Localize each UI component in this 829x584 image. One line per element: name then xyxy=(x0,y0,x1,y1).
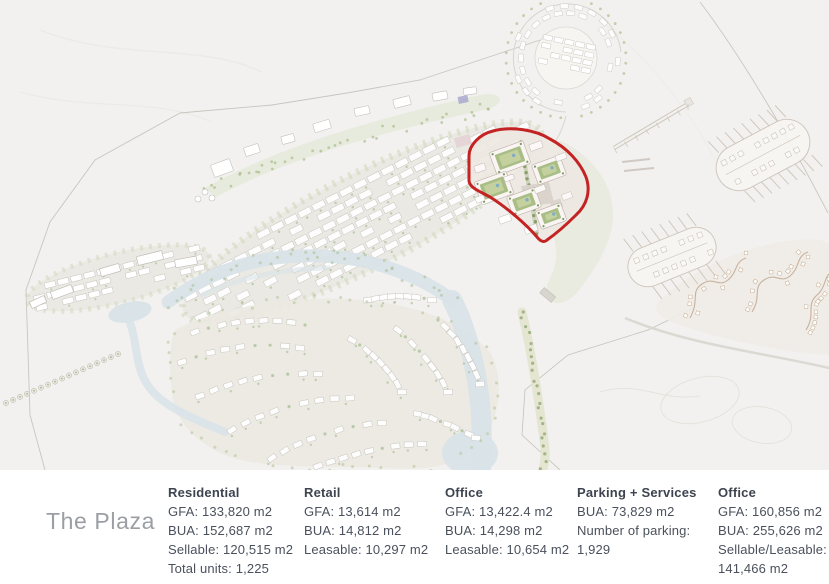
stat-column-retail-1: RetailGFA: 13,614 m2BUA: 14,812 m2Leasab… xyxy=(304,483,436,559)
stat-line: BUA: 255,626 m2 xyxy=(718,521,829,540)
stat-line: Number of parking: 1,929 xyxy=(577,521,713,559)
stat-column-header: Residential xyxy=(168,483,300,502)
stat-column-header: Parking + Services xyxy=(577,483,713,502)
stat-column-header: Retail xyxy=(304,483,436,502)
stats-panel: The Plaza ResidentialGFA: 133,820 m2BUA:… xyxy=(0,470,829,584)
stat-column-office-2: OfficeGFA: 13,422.4 m2BUA: 14,298 m2Leas… xyxy=(445,483,577,559)
stat-line: Sellable: 120,515 m2 xyxy=(168,540,300,559)
stat-column-header: Office xyxy=(445,483,577,502)
stat-line: GFA: 133,820 m2 xyxy=(168,502,300,521)
masterplan-map-svg xyxy=(0,0,829,470)
stat-line: BUA: 73,829 m2 xyxy=(577,502,713,521)
stat-line: GFA: 160,856 m2 xyxy=(718,502,829,521)
masterplan-screenshot: The Plaza ResidentialGFA: 133,820 m2BUA:… xyxy=(0,0,829,584)
stat-line: BUA: 14,812 m2 xyxy=(304,521,436,540)
stat-line: BUA: 152,687 m2 xyxy=(168,521,300,540)
stat-column-header: Office xyxy=(718,483,829,502)
stat-line: BUA: 14,298 m2 xyxy=(445,521,577,540)
page-title: The Plaza xyxy=(46,508,155,535)
stat-line: Sellable/Leasable: 141,466 m2 xyxy=(718,540,829,578)
stat-line: Leasable: 10,297 m2 xyxy=(304,540,436,559)
masterplan-map xyxy=(0,0,829,470)
stat-column-residential-0: ResidentialGFA: 133,820 m2BUA: 152,687 m… xyxy=(168,483,300,578)
stat-column-parking-services-3: Parking + ServicesBUA: 73,829 m2Number o… xyxy=(577,483,713,559)
stat-line: Leasable: 10,654 m2 xyxy=(445,540,577,559)
stat-line: Total units: 1,225 xyxy=(168,559,300,578)
stat-line: GFA: 13,422.4 m2 xyxy=(445,502,577,521)
stat-line: GFA: 13,614 m2 xyxy=(304,502,436,521)
stat-column-office-4: OfficeGFA: 160,856 m2BUA: 255,626 m2Sell… xyxy=(718,483,829,578)
